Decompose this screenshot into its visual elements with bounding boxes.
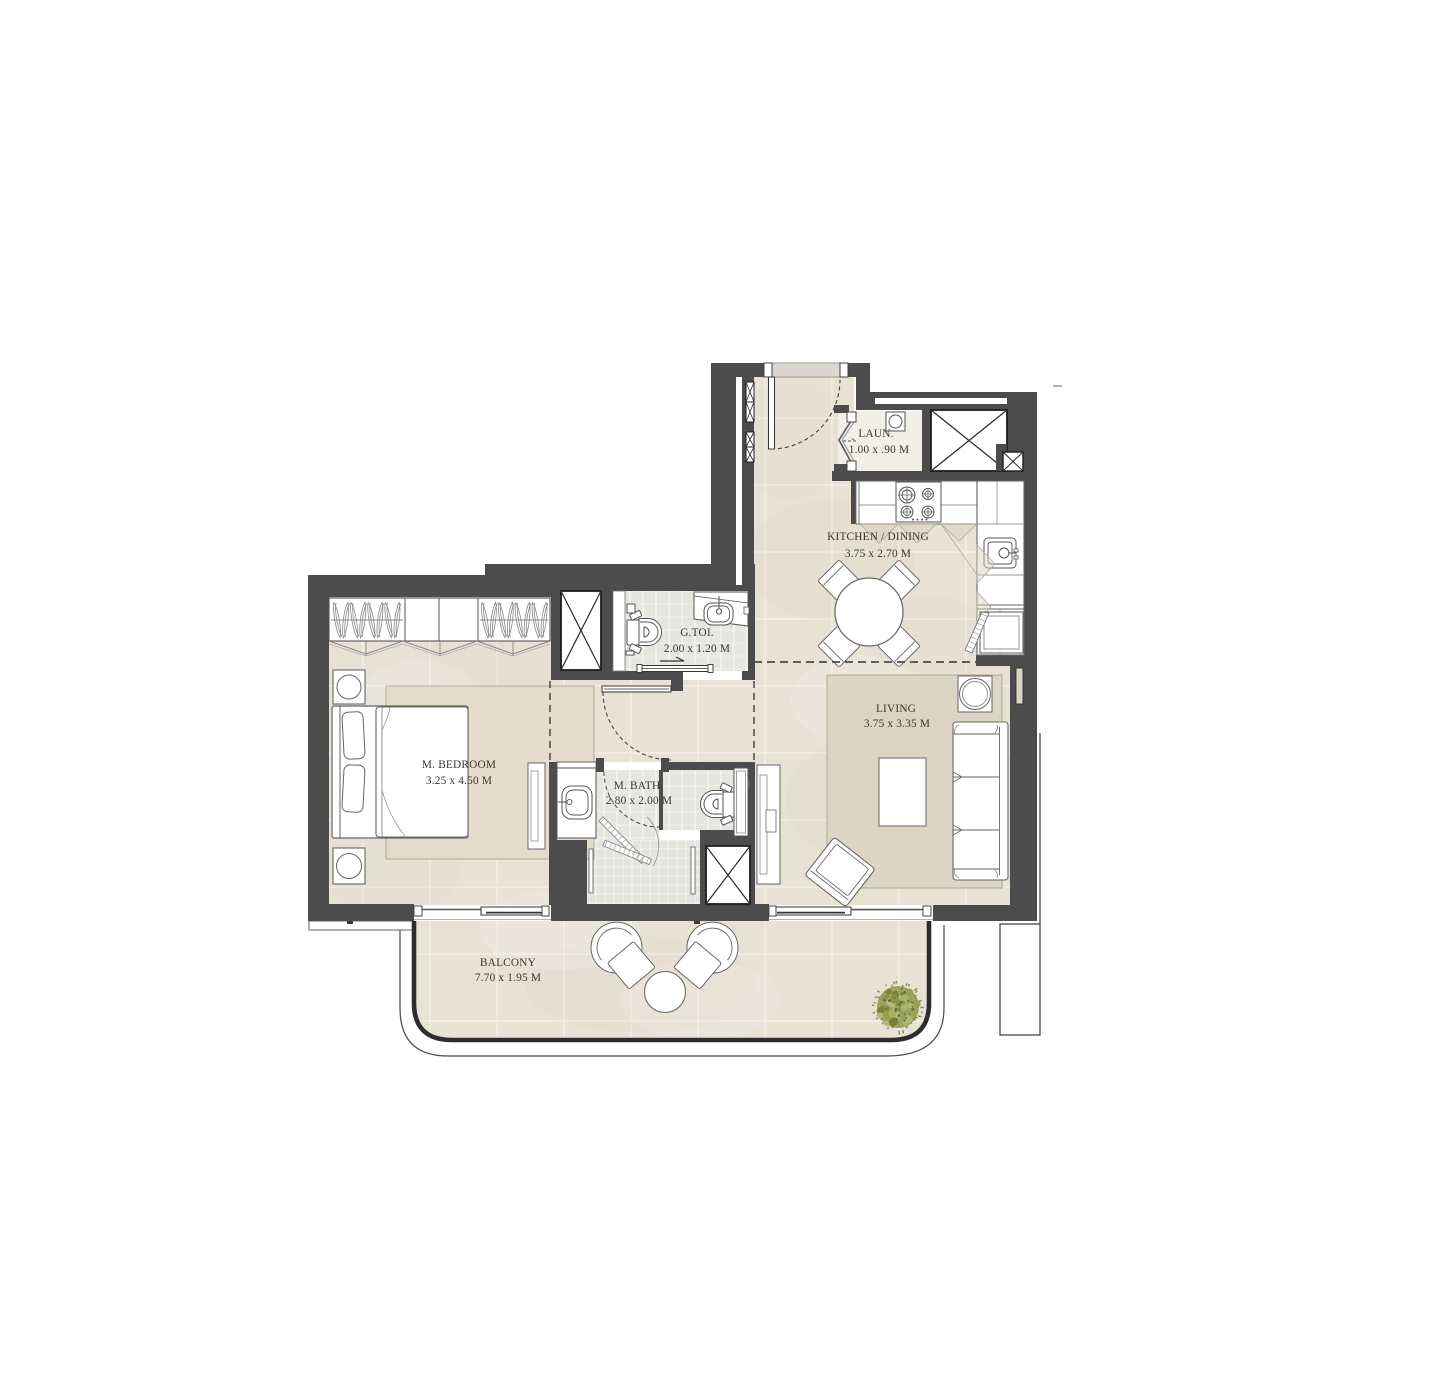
svg-text:G.TOI.: G.TOI. [680, 627, 714, 639]
svg-text:7.70 x 1.95 M: 7.70 x 1.95 M [475, 972, 541, 984]
svg-text:3.75 x 3.35 M: 3.75 x 3.35 M [864, 718, 930, 730]
svg-text:3.75 x 2.70 M: 3.75 x 2.70 M [845, 548, 911, 560]
svg-text:M. BEDROOM: M. BEDROOM [422, 759, 496, 771]
svg-text:2.80 x 2.00 M: 2.80 x 2.00 M [606, 795, 672, 807]
svg-text:BALCONY: BALCONY [480, 957, 536, 969]
svg-text:LAUN.: LAUN. [858, 428, 893, 440]
svg-text:M. BATH: M. BATH [614, 780, 661, 792]
svg-text:LIVING: LIVING [876, 703, 916, 715]
svg-text:2.00 x 1.20 M: 2.00 x 1.20 M [664, 643, 730, 655]
svg-text:KITCHEN / DINING: KITCHEN / DINING [827, 531, 929, 543]
svg-text:3.25 x 4.50 M: 3.25 x 4.50 M [426, 775, 492, 787]
svg-text:1.00 x .90 M: 1.00 x .90 M [849, 444, 909, 456]
